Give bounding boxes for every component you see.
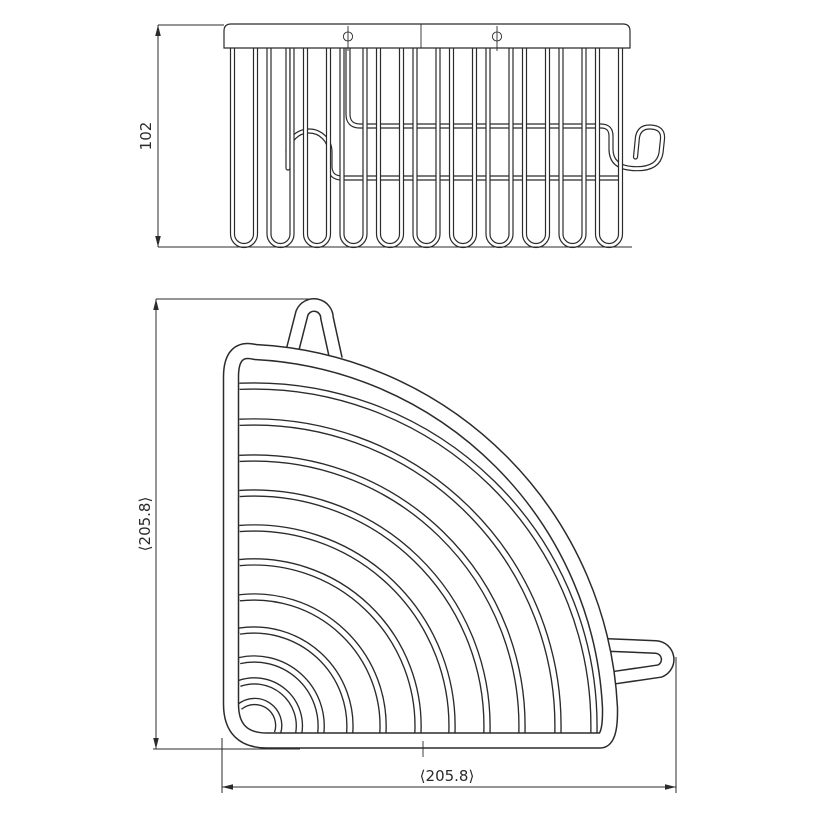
hanging-loop-right xyxy=(608,645,668,678)
height-dimension-label: 102 xyxy=(137,122,155,151)
plan-view: ⟨205.8⟩ ⟨205.8⟩ xyxy=(136,299,676,793)
basket-wires xyxy=(233,46,621,246)
side-elevation-view: 102 xyxy=(137,24,663,247)
width-dimension-label: ⟨205.8⟩ xyxy=(420,767,475,785)
technical-drawing: 102 ⟨205.8⟩ xyxy=(0,0,820,820)
basket-top-rail xyxy=(224,24,630,48)
bottom-wires xyxy=(240,386,594,733)
height-dimension: 102 xyxy=(137,25,224,247)
depth-dimension-label: ⟨205.8⟩ xyxy=(136,497,154,552)
technical-drawing-page: 102 ⟨205.8⟩ xyxy=(0,0,820,820)
